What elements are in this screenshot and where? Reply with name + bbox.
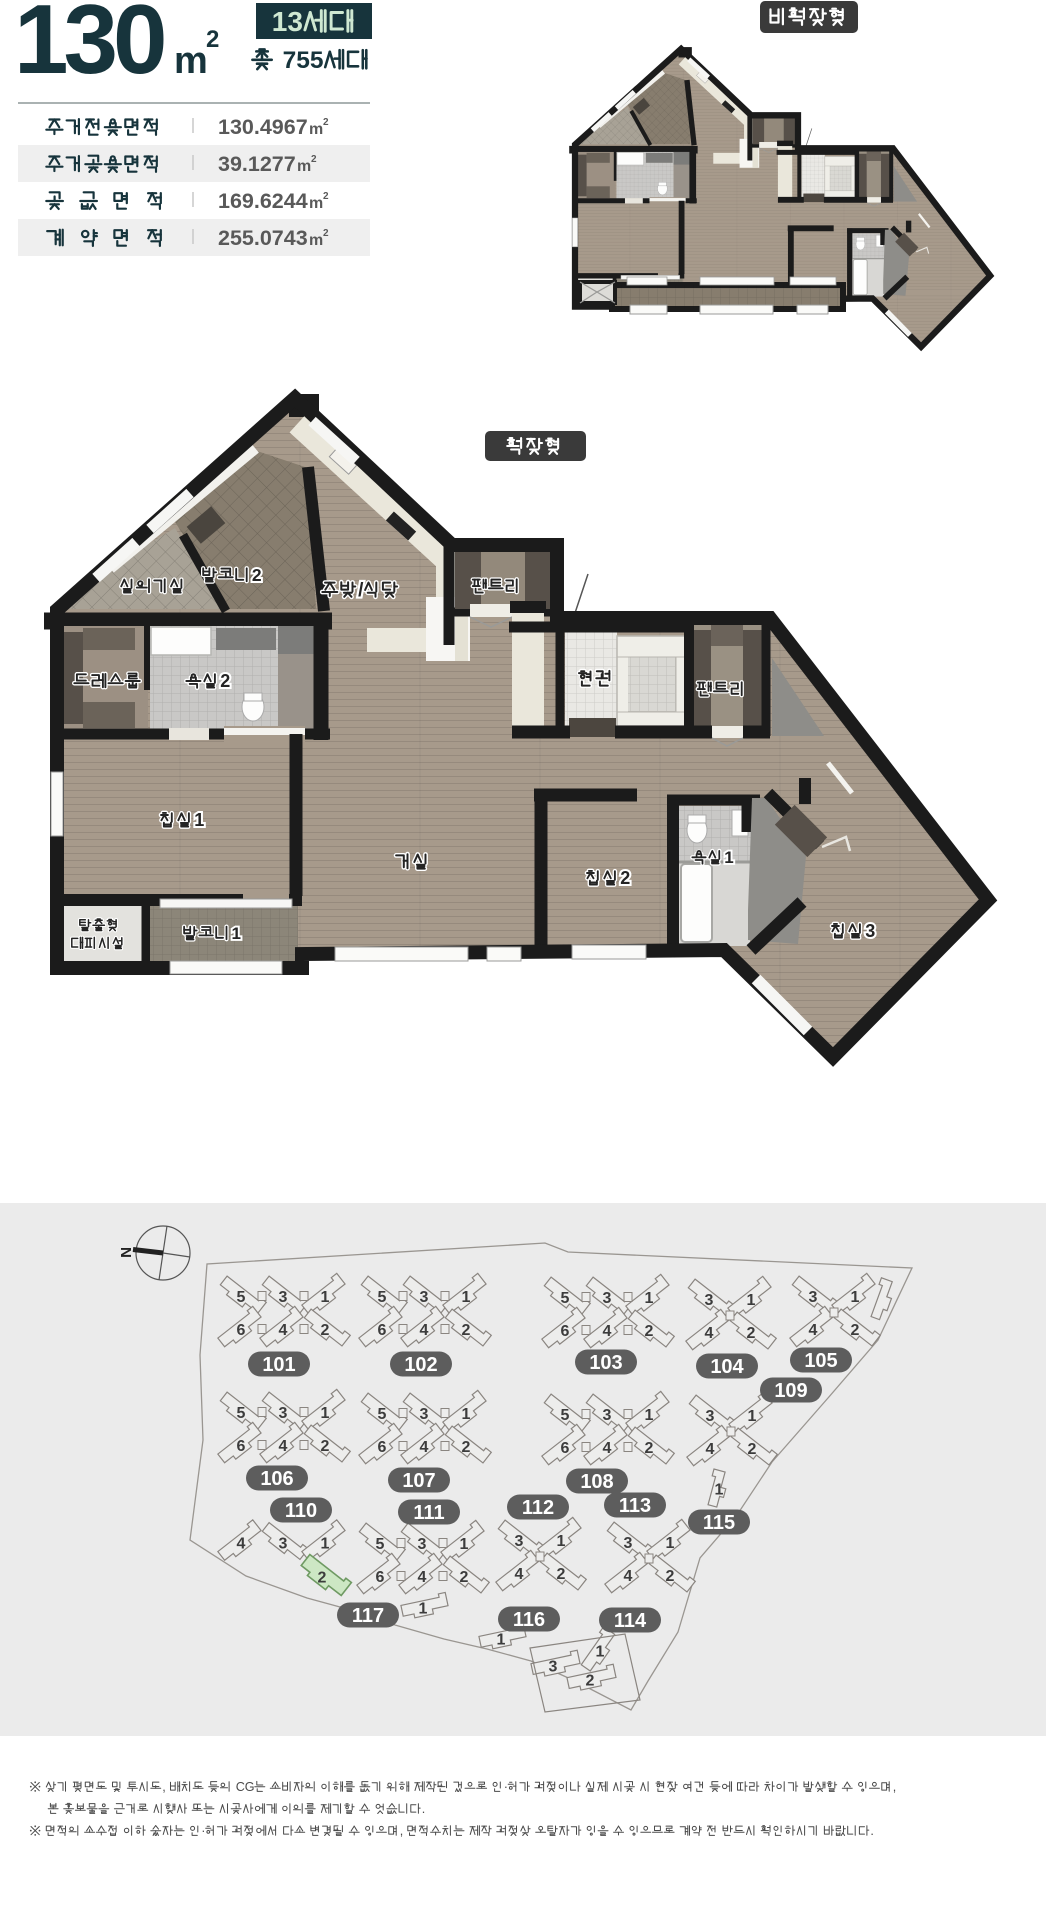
svg-text:1: 1 (557, 1533, 566, 1550)
svg-text:4: 4 (603, 1323, 612, 1340)
svg-text:1: 1 (645, 1290, 654, 1307)
svg-text:1: 1 (645, 1407, 654, 1424)
svg-text:·: · (201, 1824, 205, 1838)
svg-text:1: 1 (462, 1406, 471, 1423)
svg-text:112: 112 (522, 1497, 554, 1519)
svg-text:1: 1 (724, 848, 733, 867)
svg-text:5: 5 (376, 1536, 385, 1553)
svg-text:3: 3 (418, 1536, 427, 1553)
svg-text:5: 5 (378, 1406, 387, 1423)
svg-text:1: 1 (321, 1536, 330, 1553)
svg-text:114: 114 (614, 1610, 647, 1632)
svg-text:4: 4 (279, 1438, 288, 1455)
svg-text:3: 3 (624, 1535, 633, 1552)
svg-text:104: 104 (710, 1356, 744, 1378)
svg-text:6: 6 (378, 1322, 387, 1339)
svg-text:755: 755 (283, 47, 324, 74)
svg-text:1: 1 (321, 1289, 330, 1306)
svg-text:130: 130 (14, 0, 164, 94)
svg-text:169.6244: 169.6244 (218, 189, 308, 213)
svg-text:117: 117 (352, 1605, 384, 1627)
svg-text:1: 1 (321, 1405, 330, 1422)
svg-text:3: 3 (603, 1407, 612, 1424)
svg-text:2: 2 (311, 154, 317, 165)
svg-text:116: 116 (513, 1609, 545, 1631)
svg-text:2: 2 (323, 117, 329, 128)
svg-text:1: 1 (194, 810, 204, 830)
svg-text:1: 1 (232, 924, 241, 943)
svg-text:m: m (309, 195, 323, 212)
svg-text:,: , (400, 1824, 404, 1838)
svg-text:1: 1 (462, 1289, 471, 1306)
svg-text:3: 3 (706, 1408, 715, 1425)
svg-text:2: 2 (645, 1440, 654, 1457)
svg-text:113: 113 (619, 1495, 651, 1517)
svg-text:.: . (870, 1824, 874, 1838)
svg-text:13: 13 (272, 6, 303, 37)
svg-text:109: 109 (774, 1380, 807, 1402)
svg-text:3: 3 (420, 1289, 429, 1306)
svg-text:6: 6 (237, 1322, 246, 1339)
svg-text:4: 4 (603, 1440, 612, 1457)
svg-text:3: 3 (279, 1289, 288, 1306)
svg-text:106: 106 (260, 1468, 293, 1490)
svg-text:110: 110 (285, 1500, 317, 1522)
svg-text:5: 5 (561, 1290, 570, 1307)
svg-text:4: 4 (624, 1568, 633, 1585)
svg-text:6: 6 (376, 1569, 385, 1586)
svg-text:4: 4 (237, 1536, 246, 1553)
svg-text:m: m (174, 40, 208, 82)
svg-text:1: 1 (497, 1632, 506, 1649)
svg-text:111: 111 (413, 1502, 444, 1524)
svg-text:4: 4 (706, 1441, 715, 1458)
svg-text:255.0743: 255.0743 (218, 226, 308, 250)
svg-text:6: 6 (561, 1323, 570, 1340)
svg-text:,: , (893, 1780, 897, 1794)
svg-text:3: 3 (865, 921, 875, 941)
svg-text:1: 1 (666, 1535, 675, 1552)
svg-text:115: 115 (703, 1512, 735, 1534)
svg-text:2: 2 (321, 1322, 330, 1339)
svg-text:3: 3 (420, 1406, 429, 1423)
svg-text:3: 3 (279, 1536, 288, 1553)
svg-text:1: 1 (419, 1601, 428, 1618)
svg-text:1: 1 (747, 1292, 756, 1309)
svg-text:2: 2 (748, 1441, 757, 1458)
svg-text:2: 2 (462, 1322, 471, 1339)
svg-text:4: 4 (705, 1325, 714, 1342)
svg-text:·: · (504, 1780, 508, 1794)
svg-text:4: 4 (809, 1322, 818, 1339)
svg-text:2: 2 (645, 1323, 654, 1340)
svg-text:6: 6 (378, 1439, 387, 1456)
svg-text:/: / (358, 580, 364, 601)
svg-text:2: 2 (252, 565, 262, 585)
svg-text:3: 3 (705, 1292, 714, 1309)
svg-text:2: 2 (321, 1438, 330, 1455)
svg-text:108: 108 (580, 1471, 613, 1493)
svg-text:2: 2 (557, 1566, 566, 1583)
svg-text:m: m (309, 232, 323, 249)
svg-text:2: 2 (220, 671, 230, 691)
svg-text:102: 102 (404, 1354, 437, 1376)
svg-text:105: 105 (804, 1350, 837, 1372)
svg-text:2: 2 (586, 1673, 595, 1690)
svg-text:2: 2 (747, 1325, 756, 1342)
svg-text:3: 3 (515, 1533, 524, 1550)
svg-text:103: 103 (589, 1352, 622, 1374)
svg-text:4: 4 (515, 1566, 524, 1583)
svg-text:39.1277: 39.1277 (218, 152, 296, 176)
svg-text:,: , (162, 1780, 166, 1794)
svg-text:3: 3 (549, 1659, 558, 1676)
svg-text:130.4967: 130.4967 (218, 115, 308, 139)
svg-text:3: 3 (279, 1405, 288, 1422)
svg-text:2: 2 (460, 1569, 469, 1586)
svg-text:2: 2 (318, 1570, 327, 1587)
svg-text:4: 4 (279, 1322, 288, 1339)
svg-text:6: 6 (561, 1440, 570, 1457)
svg-text:N: N (117, 1247, 134, 1258)
svg-text:1: 1 (460, 1536, 469, 1553)
svg-text:5: 5 (237, 1405, 246, 1422)
svg-text:5: 5 (378, 1289, 387, 1306)
svg-text:1: 1 (596, 1644, 605, 1661)
svg-text:4: 4 (418, 1569, 427, 1586)
svg-text:2: 2 (323, 228, 329, 239)
svg-text:5: 5 (237, 1289, 246, 1306)
svg-text:m: m (309, 121, 323, 138)
svg-text:1: 1 (851, 1289, 860, 1306)
svg-text:1: 1 (748, 1408, 757, 1425)
svg-text:m: m (297, 158, 311, 175)
svg-text:4: 4 (420, 1322, 429, 1339)
svg-text:6: 6 (237, 1438, 246, 1455)
svg-text:101: 101 (262, 1354, 295, 1376)
svg-text:.: . (422, 1802, 426, 1816)
svg-text:2: 2 (462, 1439, 471, 1456)
svg-text:1: 1 (715, 1482, 724, 1499)
svg-text:2: 2 (206, 26, 219, 53)
svg-text:107: 107 (402, 1470, 435, 1492)
svg-text:3: 3 (809, 1289, 818, 1306)
svg-text:4: 4 (420, 1439, 429, 1456)
svg-text:CG: CG (236, 1780, 255, 1794)
svg-text:5: 5 (561, 1407, 570, 1424)
svg-text:2: 2 (666, 1568, 675, 1585)
svg-text:2: 2 (323, 191, 329, 202)
svg-text:2: 2 (620, 868, 630, 888)
svg-text:2: 2 (851, 1322, 860, 1339)
svg-text:3: 3 (603, 1290, 612, 1307)
